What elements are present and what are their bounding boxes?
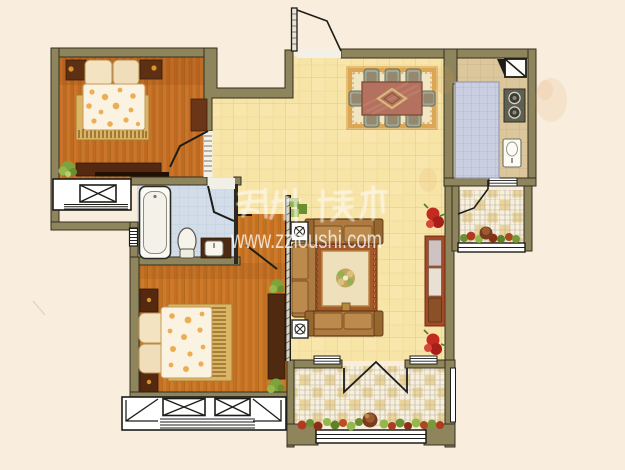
svg-text:www.zzloushi.com: www.zzloushi.com [230,226,382,254]
